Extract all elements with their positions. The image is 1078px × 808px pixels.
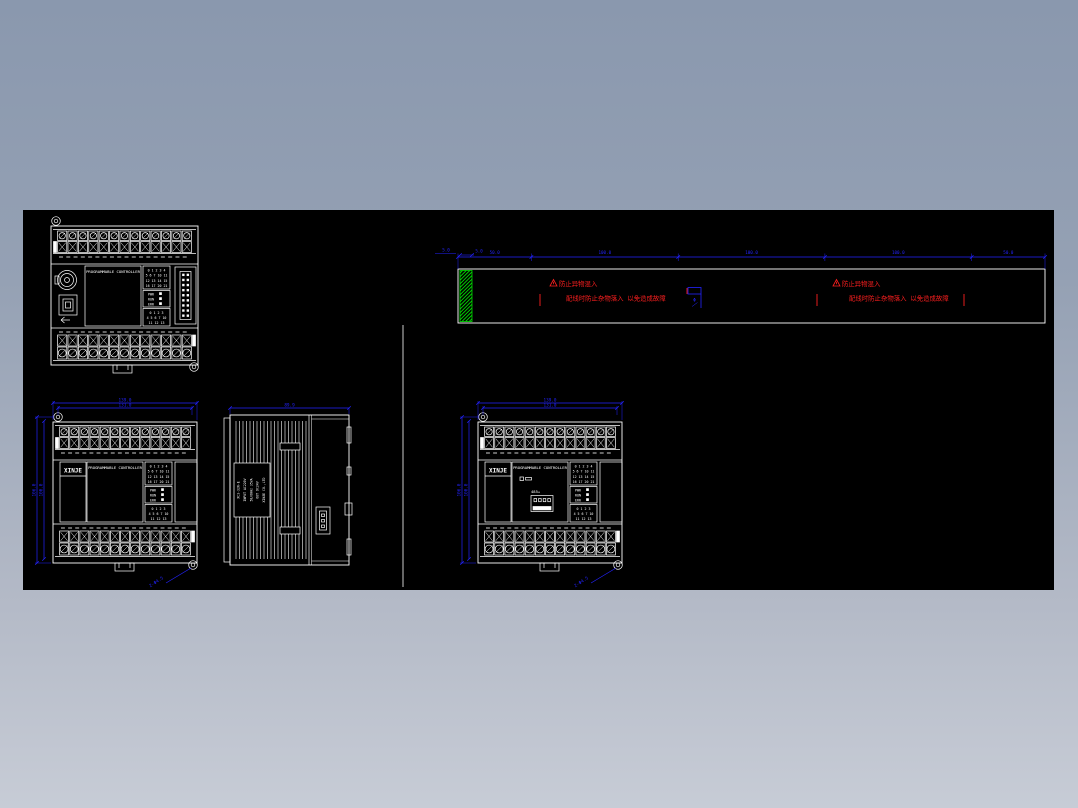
rail-hole-symbol: Φ [693, 298, 696, 304]
dimension-label: 106.0 [456, 483, 462, 496]
status-indicator: RUN [150, 493, 156, 497]
side-plate-line: XINJE CO.,LTD [262, 477, 266, 502]
rail-end-hatch [408, 271, 524, 322]
status-indicator: ERR [575, 498, 581, 502]
side-plate-line: 50/60Hz 35VA [249, 478, 253, 501]
warning-caution-body-2: 配线时防止杂物落入 以免造成故障 [849, 294, 949, 303]
warning-caution-title-1: 防止异物混入 [559, 279, 598, 288]
cad-drawing-sheet: PROGRAMMABLE CONTROLLER0 1 2 3 45 6 7 10… [23, 210, 1054, 590]
drawing-mounting-rail: 50.0100.0100.0100.050.05.05.0防止异物混入配线时防止… [408, 248, 1047, 324]
io-indicator-row: 4 5 6 7 10 [147, 316, 167, 320]
drawing-plc-front-top-left: PROGRAMMABLE CONTROLLER0 1 2 3 45 6 7 10… [51, 217, 198, 373]
io-indicator-row: 16 17 20 21 [573, 480, 595, 484]
status-indicator: PWR [575, 488, 581, 492]
dimension-label: 100.0 [38, 483, 44, 496]
side-plate-line: INPUT AC220V [243, 478, 247, 501]
cad-viewer-background: PROGRAMMABLE CONTROLLER0 1 2 3 45 6 7 10… [0, 0, 1078, 808]
warning-caution-title-2: 防止异物混入 [842, 279, 881, 288]
rail-warnings: 防止异物混入配线时防止杂物落入 以免造成故障防止异物混入配线时防止杂物落入 以免… [540, 279, 964, 306]
rail-dimension-label: 100.0 [598, 250, 611, 255]
device-title: PROGRAMMABLE CONTROLLER [513, 465, 568, 470]
io-indicator-row: 16 17 20 21 [146, 284, 168, 288]
io-indicator-row: 4 5 6 7 10 [149, 512, 169, 516]
io-indicator-row: 0 1 2 3 [150, 311, 164, 315]
dimension-label: 89.9 [284, 402, 295, 408]
rail-dimension-label: 50.0 [490, 250, 501, 255]
status-indicator: ERR [150, 498, 156, 502]
status-indicator: RUN [575, 493, 581, 497]
io-indicator-row: 0 1 2 3 [152, 507, 166, 511]
drawing-plc-side-view: 89.9XC3-32R-EINPUT AC220V50/60Hz 35VAOUT… [224, 402, 352, 565]
status-indicator: ERR [148, 302, 154, 306]
io-indicator-row: 16 17 20 21 [148, 480, 170, 484]
drawing-plc-front-bottom-right: XINJEPROGRAMMABLE CONTROLLER485+0 1 2 3 … [456, 397, 623, 589]
io-indicator-row: 4 5 6 7 10 [574, 512, 594, 516]
rail-dimension-label: 100.0 [892, 250, 905, 255]
io-indicator-row: 5 6 7 10 11 [573, 470, 595, 474]
io-indicator-row: 12 13 14 15 [573, 475, 595, 479]
brand-logo: XINJE [64, 468, 82, 475]
warning-caution-body-1: 配线时防止杂物落入 以免造成故障 [566, 294, 666, 303]
status-indicator: RUN [148, 297, 154, 301]
dimension-label: 131.0 [544, 402, 557, 408]
dimension-label: 106.0 [31, 483, 37, 496]
io-indicator-row: 12 13 14 15 [148, 475, 170, 479]
rail-dimension-label: 50.0 [1003, 250, 1014, 255]
dimension-label: 100.0 [463, 483, 469, 496]
side-plate-line: XC3-32R-E [237, 481, 241, 498]
io-indicator-row: 5 6 7 10 11 [146, 274, 168, 278]
device-title: PROGRAMMABLE CONTROLLER [88, 465, 143, 470]
drawing-canvas[interactable]: PROGRAMMABLE CONTROLLER0 1 2 3 45 6 7 10… [23, 210, 1054, 590]
status-indicator: PWR [148, 292, 154, 296]
io-indicator-row: 0 1 2 3 4 [150, 464, 168, 468]
side-plate-line: OUT DC24V [256, 481, 260, 498]
rail-clip-symbol: Φ [687, 288, 701, 309]
expansion-label: 485+ [531, 489, 541, 494]
io-indicator-row: 0 1 2 3 4 [575, 464, 593, 468]
io-indicator-row: 0 1 2 3 4 [148, 268, 166, 272]
io-indicator-row: 11 12 13 [151, 517, 167, 521]
status-indicator: PWR [150, 488, 156, 492]
dimension-label: 131.0 [119, 402, 132, 408]
io-indicator-row: 11 12 13 [149, 321, 165, 325]
hole-callout: 2-Φ4.5 [148, 575, 165, 589]
io-indicator-row: 0 1 2 3 [577, 507, 591, 511]
hole-callout: 2-Φ4.5 [573, 575, 590, 589]
rail-hatch-width-label: 5.0 [475, 249, 483, 254]
brand-logo: XINJE [489, 468, 507, 475]
io-indicator-row: 11 12 13 [576, 517, 592, 521]
io-indicator-row: 12 13 14 15 [146, 279, 168, 283]
io-indicator-row: 5 6 7 10 11 [148, 470, 170, 474]
rail-offset-label: 5.0 [442, 248, 450, 253]
device-title: PROGRAMMABLE CONTROLLER [86, 269, 141, 274]
rail-dimension-label: 100.0 [745, 250, 758, 255]
drawing-plc-front-bottom-left: XINJEPROGRAMMABLE CONTROLLER0 1 2 3 45 6… [31, 397, 198, 589]
